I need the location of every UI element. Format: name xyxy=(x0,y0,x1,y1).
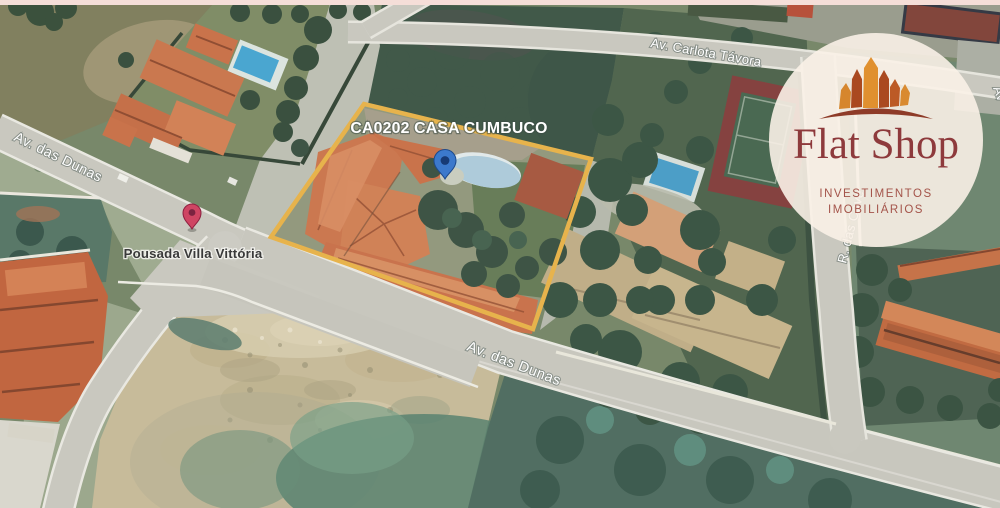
svg-text:IMOBILIÁRIOS: IMOBILIÁRIOS xyxy=(828,203,924,216)
svg-text:Pousada Villa Vittória: Pousada Villa Vittória xyxy=(124,246,263,261)
svg-text:CA0202 CASA CUMBUCO: CA0202 CASA CUMBUCO xyxy=(350,120,547,137)
svg-text:Flat Shop: Flat Shop xyxy=(793,121,959,168)
svg-text:INVESTIMENTOS: INVESTIMENTOS xyxy=(819,188,932,200)
